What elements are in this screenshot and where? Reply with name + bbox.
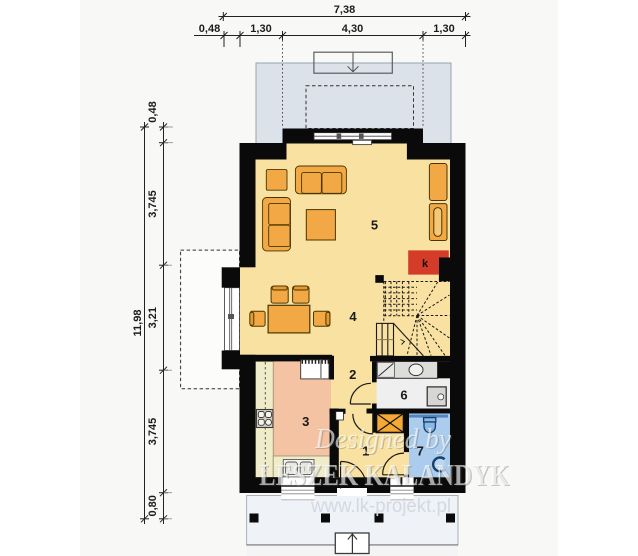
svg-text:3,21: 3,21 bbox=[147, 307, 159, 328]
svg-text:3,745: 3,745 bbox=[147, 418, 159, 446]
svg-text:11,98: 11,98 bbox=[132, 310, 144, 337]
svg-text:7,38: 7,38 bbox=[334, 4, 355, 16]
svg-text:5: 5 bbox=[371, 218, 378, 233]
svg-text:0,80: 0,80 bbox=[147, 495, 159, 516]
svg-text:1,30: 1,30 bbox=[433, 23, 454, 35]
svg-text:4: 4 bbox=[349, 309, 357, 324]
svg-text:www.lk-projekt.pl: www.lk-projekt.pl bbox=[310, 496, 451, 517]
svg-text:3: 3 bbox=[302, 414, 309, 429]
svg-text:k: k bbox=[422, 258, 429, 270]
svg-text:1,30: 1,30 bbox=[250, 23, 271, 35]
svg-text:Designed by: Designed by bbox=[314, 424, 452, 455]
svg-text:LESZEK KALANDYK: LESZEK KALANDYK bbox=[259, 457, 509, 492]
svg-text:3,745: 3,745 bbox=[147, 190, 159, 218]
svg-text:2: 2 bbox=[349, 367, 356, 382]
svg-text:0,48: 0,48 bbox=[199, 23, 220, 35]
svg-text:0,48: 0,48 bbox=[147, 101, 159, 122]
svg-text:6: 6 bbox=[400, 388, 407, 403]
svg-text:4,30: 4,30 bbox=[342, 23, 363, 35]
